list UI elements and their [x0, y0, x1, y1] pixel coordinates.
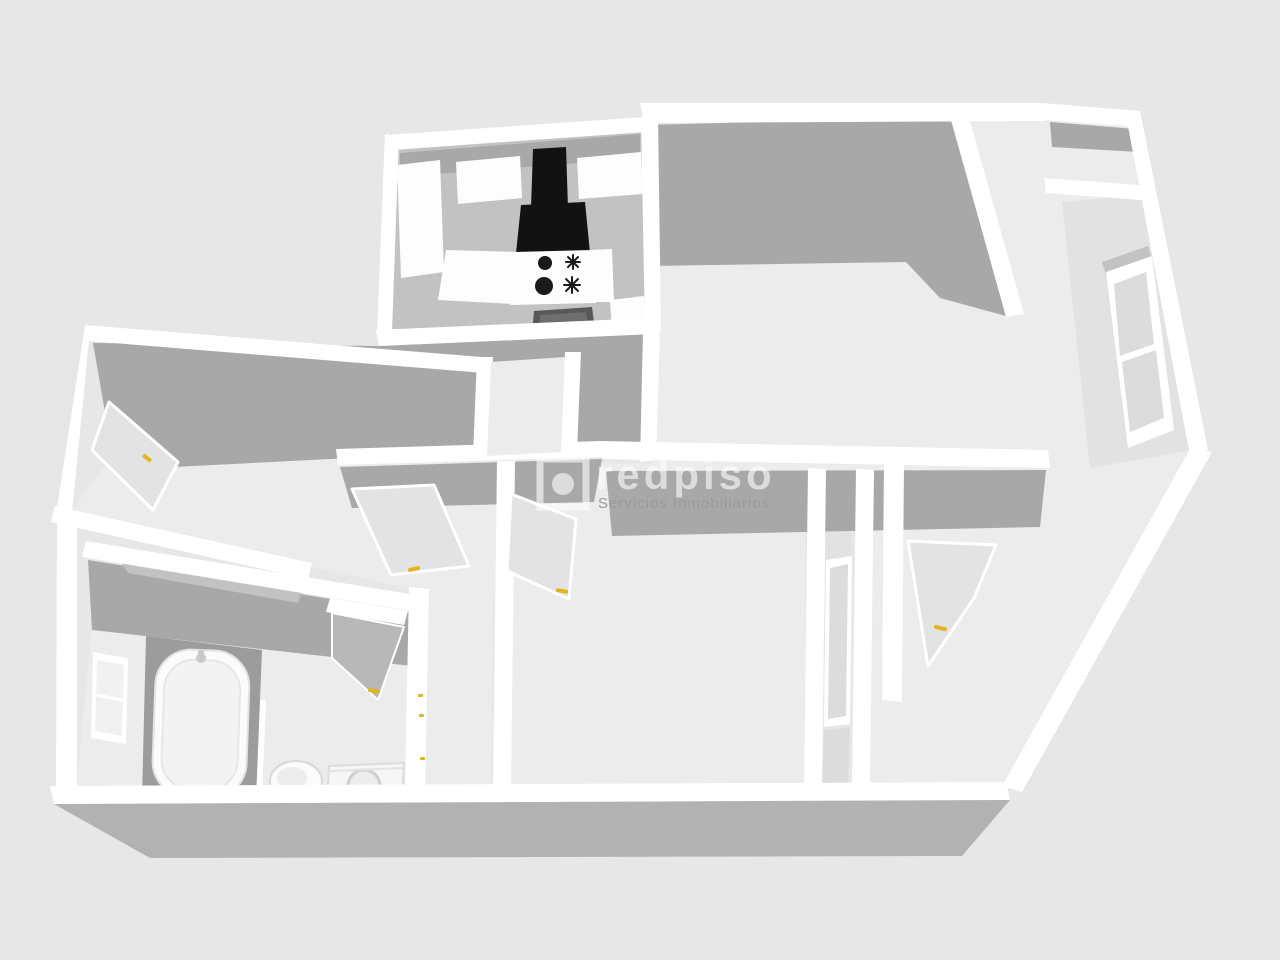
kitchen — [390, 131, 648, 333]
upper-cabinet-left — [456, 156, 522, 204]
kitchen-window — [397, 160, 444, 278]
range-hood-canopy — [516, 202, 590, 253]
gas-burner-icon-bottom — [564, 277, 580, 293]
floorplan-render: redpiso Servicios Inmobiliarios — [0, 0, 1280, 960]
gas-burner-icon-top — [566, 255, 580, 269]
corridor-floor — [425, 590, 493, 790]
range-hood-chimney — [531, 147, 568, 208]
cooktop — [510, 250, 596, 305]
wc-wall-band — [405, 587, 429, 792]
solid-burner-large — [535, 277, 553, 295]
watermark-tagline: Servicios Inmobiliarios — [598, 495, 770, 512]
watermark-logo-dot — [552, 473, 574, 495]
bathtub-spout — [198, 650, 204, 660]
glazed-panel-pane — [828, 564, 848, 719]
living-room-top-band — [640, 103, 1046, 123]
bottom-wall-outer-face — [54, 800, 1010, 858]
upper-cabinet-right — [577, 152, 643, 199]
bathtub — [151, 648, 250, 799]
glazed-panel-lower — [822, 727, 850, 788]
watermark-brand: redpiso — [596, 451, 776, 498]
bedroom-hinge-wall-band — [882, 459, 904, 702]
counter-left — [438, 250, 518, 304]
left-outer-band-lower — [56, 508, 77, 792]
outer-walls — [50, 782, 1010, 858]
solid-burner-small — [538, 256, 552, 270]
kitchen-doorway-floor — [487, 357, 565, 456]
bedroom-glazed-wall — [822, 556, 852, 788]
